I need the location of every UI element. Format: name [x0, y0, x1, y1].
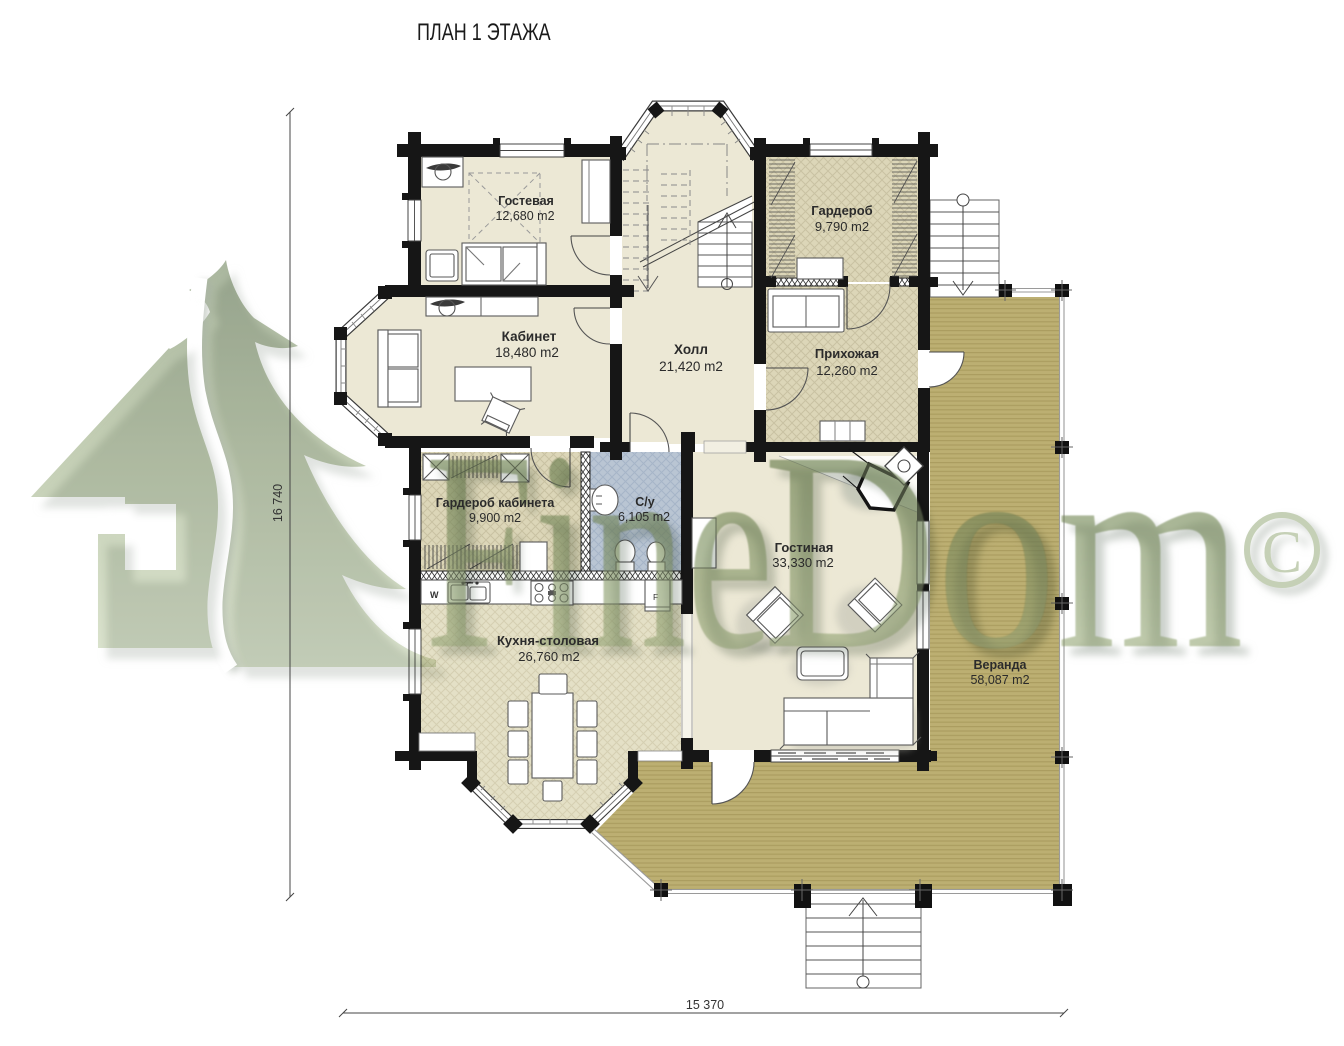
- svg-text:18,480 m2: 18,480 m2: [495, 345, 559, 360]
- svg-text:9,790 m2: 9,790 m2: [815, 219, 869, 234]
- svg-text:12,260 m2: 12,260 m2: [816, 363, 877, 378]
- svg-text:Прихожая: Прихожая: [815, 346, 879, 361]
- svg-text:58,087 m2: 58,087 m2: [970, 673, 1029, 687]
- svg-text:26,760 m2: 26,760 m2: [518, 649, 579, 664]
- svg-text:12,680 m2: 12,680 m2: [495, 209, 554, 223]
- svg-text:6,105 m2: 6,105 m2: [618, 510, 670, 524]
- svg-text:Кухня-столовая: Кухня-столовая: [497, 633, 599, 648]
- svg-text:C: C: [1262, 519, 1302, 585]
- svg-text:15 370: 15 370: [686, 998, 724, 1012]
- svg-text:С/у: С/у: [635, 495, 655, 509]
- svg-text:33,330 m2: 33,330 m2: [772, 555, 833, 570]
- svg-text:21,420 m2: 21,420 m2: [659, 359, 723, 374]
- svg-text:Гостевая: Гостевая: [498, 194, 554, 208]
- svg-text:Fine: Fine: [425, 393, 773, 707]
- svg-text:9,900 m2: 9,900 m2: [469, 511, 521, 525]
- svg-text:16 740: 16 740: [271, 484, 285, 522]
- svg-text:Веранда: Веранда: [973, 658, 1027, 672]
- svg-text:Гардероб: Гардероб: [811, 203, 872, 218]
- svg-text:Холл: Холл: [674, 342, 708, 357]
- svg-text:Кабинет: Кабинет: [502, 329, 557, 344]
- svg-text:ПЛАН 1 ЭТАЖА: ПЛАН 1 ЭТАЖА: [417, 20, 551, 46]
- svg-text:Гостиная: Гостиная: [775, 540, 834, 555]
- svg-text:Гардероб кабинета: Гардероб кабинета: [436, 496, 556, 510]
